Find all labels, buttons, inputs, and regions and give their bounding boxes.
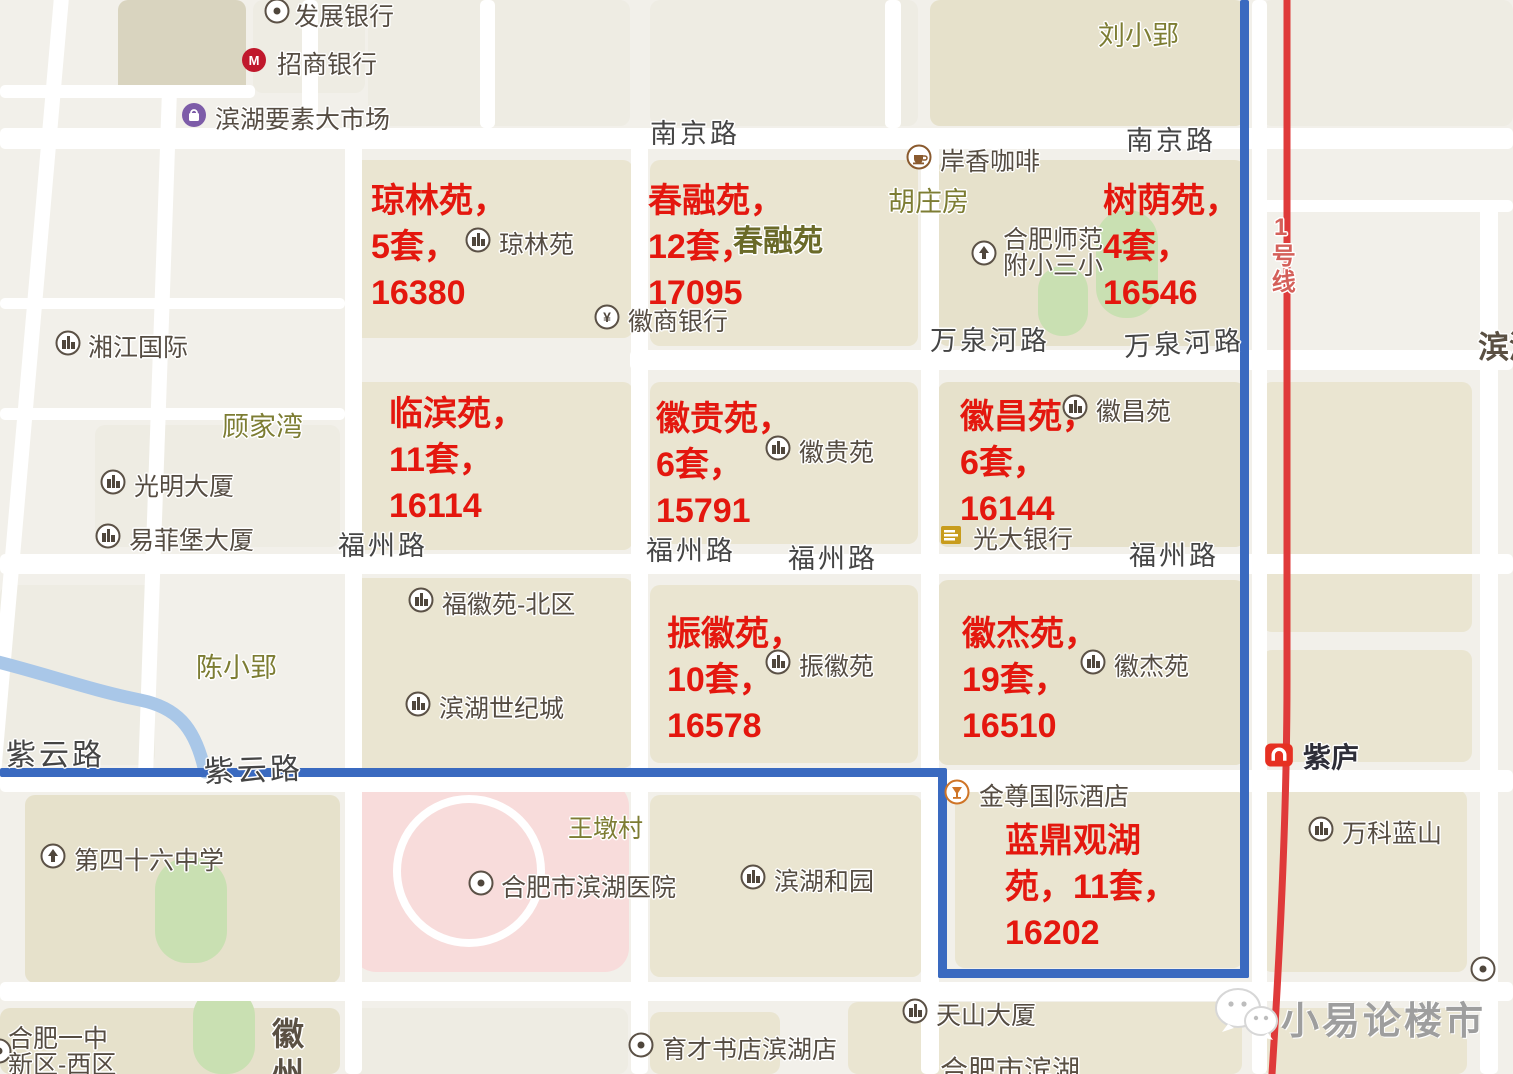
poi-label: 易菲堡大厦 <box>129 528 254 554</box>
coffee-icon <box>906 144 932 170</box>
listing-annotation-line: 苑，11套， <box>1005 864 1177 910</box>
listing-annotation-line: 16510 <box>962 703 1098 749</box>
poi-label-line: 发展银行 <box>294 4 394 30</box>
poi-label: 合肥市滨湖医院 <box>501 875 676 901</box>
listing-annotation-line: 16380 <box>371 270 507 316</box>
poi-label: 福徽苑-北区 <box>442 592 575 618</box>
map-block <box>1262 790 1467 972</box>
road <box>630 350 1513 370</box>
listing-annotation-line: 徽贵苑， <box>656 396 792 442</box>
map-block <box>930 0 1245 126</box>
road-label: 紫云路 <box>6 740 105 772</box>
listing-annotation-line: 10套， <box>667 657 803 703</box>
road <box>0 298 345 309</box>
poi-label-line: 滨湖和园 <box>774 869 874 895</box>
partial-label: 合肥市滨湖 <box>940 1056 1080 1074</box>
listing-annotation-line: 11套， <box>389 437 525 483</box>
poi-label: 滨湖和园 <box>774 869 874 895</box>
poi-label: 振徽苑 <box>799 654 874 680</box>
poi-label-line: 附小三小 <box>1003 253 1103 279</box>
poi-label: 天山大厦 <box>936 1003 1036 1029</box>
listing-annotation-line: 16114 <box>389 483 525 529</box>
building-icon <box>405 691 431 717</box>
building-icon <box>1308 816 1334 842</box>
boundary-line <box>1240 0 1249 978</box>
poi-label-line: 合肥一中 <box>8 1026 116 1052</box>
road-label: 福州路 <box>1129 542 1219 570</box>
listing-annotation: 徽昌苑，6套，16144 <box>960 394 1096 532</box>
bag-icon <box>181 102 207 128</box>
poi-label-line: 育才书店滨湖店 <box>662 1037 837 1063</box>
poi-label-line: 福徽苑-北区 <box>442 592 575 618</box>
poi-label: 徽杰苑 <box>1114 654 1189 680</box>
school-icon <box>40 843 66 869</box>
poi-label-line: 第四十六中学 <box>74 848 224 874</box>
map-block <box>1262 0 1513 126</box>
listing-annotation-line: 16546 <box>1103 270 1239 316</box>
road <box>0 554 1513 574</box>
metro-station-icon <box>1264 740 1294 770</box>
poi-label: 滨湖要素大市场 <box>215 107 390 133</box>
map-block <box>368 0 630 126</box>
road-label: 南京路 <box>650 120 740 148</box>
poi-label: 万科蓝山 <box>1342 821 1442 847</box>
poi-label: 岸香咖啡 <box>940 149 1040 175</box>
building-icon <box>740 864 766 890</box>
poi-label-line: 光明大厦 <box>134 474 234 500</box>
partial-label: 徽 <box>272 1018 304 1052</box>
poi-label: 光明大厦 <box>134 474 234 500</box>
road-label: 紫云路 <box>203 754 303 789</box>
poi-label-line: 金尊国际酒店 <box>979 784 1129 810</box>
listing-annotation-line: 春融苑， <box>648 178 784 224</box>
listing-annotation-line: 振徽苑， <box>667 611 803 657</box>
area-label: 陈小郢 <box>196 654 277 682</box>
partial-label: 州 <box>272 1058 304 1074</box>
poi-label-line: 湘江国际 <box>88 335 188 361</box>
listing-annotation-line: 12套， <box>648 224 784 270</box>
road <box>1252 0 1267 1074</box>
map-block <box>1262 382 1472 632</box>
poi-label-line: 合肥师范 <box>1003 227 1103 253</box>
road-label: 南京路 <box>1126 127 1216 155</box>
listing-annotation: 振徽苑，10套，16578 <box>667 611 803 749</box>
dot-icon <box>628 1032 654 1058</box>
poi-label-line: 天山大厦 <box>936 1003 1036 1029</box>
poi-label-line: 徽贵苑 <box>799 440 874 466</box>
road-label: 福州路 <box>646 537 736 565</box>
listing-annotation-line: 4套， <box>1103 224 1239 270</box>
poi-label-line: 滨湖世纪城 <box>439 696 564 722</box>
boundary-line <box>938 969 1249 978</box>
road <box>480 0 495 128</box>
poi-label: 育才书店滨湖店 <box>662 1037 837 1063</box>
road <box>885 0 901 128</box>
poi-label: 徽贵苑 <box>799 440 874 466</box>
partial-label: 滨湖 <box>1478 332 1513 365</box>
listing-annotation-line: 徽杰苑， <box>962 611 1098 657</box>
listing-annotation-line: 16202 <box>1005 910 1177 956</box>
listing-annotation-line: 6套， <box>960 440 1096 486</box>
listing-annotation-line: 19套， <box>962 657 1098 703</box>
poi-label: 徽昌苑 <box>1096 399 1171 425</box>
metro-line-label: 1号线 <box>1268 214 1293 295</box>
poi-label: 湘江国际 <box>88 335 188 361</box>
svg-text:¥: ¥ <box>603 309 611 325</box>
listing-annotation-line: 16578 <box>667 703 803 749</box>
dot-icon <box>468 870 494 896</box>
cmb-icon: M <box>241 47 267 73</box>
road-label: 福州路 <box>788 545 878 573</box>
listing-annotation: 蓝鼎观湖苑，11套，16202 <box>1005 818 1177 956</box>
dot-icon <box>1470 956 1496 982</box>
listing-annotation-line: 徽昌苑， <box>960 394 1096 440</box>
dot-icon <box>264 0 290 24</box>
listing-annotation-line: 16144 <box>960 486 1096 532</box>
listing-annotation: 徽贵苑，6套，15791 <box>656 396 792 534</box>
area-label: 王墩村 <box>568 816 643 842</box>
poi-label: 招商银行 <box>277 52 377 78</box>
boundary-line <box>0 768 947 777</box>
yuan-icon: ¥ <box>594 304 620 330</box>
road <box>0 85 255 98</box>
map-block <box>352 1008 628 1074</box>
poi-label-line: 振徽苑 <box>799 654 874 680</box>
listing-annotation-line: 5套， <box>371 224 507 270</box>
school-icon <box>971 240 997 266</box>
poi-label-line: 万科蓝山 <box>1342 821 1442 847</box>
area-label: 刘小郢 <box>1098 22 1179 50</box>
wechat-icon <box>1212 984 1282 1046</box>
listing-annotation-line: 17095 <box>648 270 784 316</box>
building-icon <box>902 998 928 1024</box>
listing-annotation: 树荫苑，4套，16546 <box>1103 178 1239 316</box>
map-block <box>118 0 246 96</box>
poi-label: 滨湖世纪城 <box>439 696 564 722</box>
building-icon <box>408 587 434 613</box>
metro-station-name: 紫庐 <box>1303 743 1359 772</box>
poi-label: 第四十六中学 <box>74 848 224 874</box>
poi-label-line: 合肥市滨湖医院 <box>501 875 676 901</box>
poi-label-line: 滨湖要素大市场 <box>215 107 390 133</box>
road <box>345 128 362 1074</box>
listing-annotation: 春融苑，12套，17095 <box>648 178 784 316</box>
poi-label-line: 招商银行 <box>277 52 377 78</box>
area-label: 顾家湾 <box>222 413 303 441</box>
road-label: 万泉河路 <box>1123 327 1244 362</box>
poi-label: 合肥一中新区-西区 <box>8 1026 116 1074</box>
poi-label-line: 徽昌苑 <box>1096 399 1171 425</box>
road <box>921 140 939 1074</box>
area-label: 胡庄房 <box>888 188 969 216</box>
listing-annotation-line: 临滨苑， <box>389 391 525 437</box>
poi-label: 合肥师范附小三小 <box>1003 227 1103 280</box>
listing-annotation: 徽杰苑，19套，16510 <box>962 611 1098 749</box>
poi-label-line: 岸香咖啡 <box>940 149 1040 175</box>
building-icon <box>55 330 81 356</box>
road-label: 福州路 <box>338 532 428 560</box>
listing-annotation: 临滨苑，11套，16114 <box>389 391 525 529</box>
road-label: 万泉河路 <box>930 327 1050 355</box>
map-screenshot: 发展银行M招商银行滨湖要素大市场湘江国际光明大厦易菲堡大厦琼林苑¥徽商银行岸香咖… <box>0 0 1513 1074</box>
map-block <box>650 0 918 126</box>
poi-label: 发展银行 <box>294 4 394 30</box>
map-block <box>0 585 155 765</box>
road <box>631 128 648 1074</box>
building-icon <box>100 469 126 495</box>
listing-annotation-line: 琼林苑， <box>371 178 507 224</box>
building-icon <box>95 523 121 549</box>
poi-label: 琼林苑 <box>499 232 574 258</box>
poi-label-line: 琼林苑 <box>499 232 574 258</box>
svg-text:M: M <box>249 53 260 68</box>
watermark-text: 小易论楼市 <box>1281 990 1486 1045</box>
poi-label-line: 新区-西区 <box>8 1052 116 1074</box>
listing-annotation-line: 15791 <box>656 488 792 534</box>
poi-label-line: 徽杰苑 <box>1114 654 1189 680</box>
listing-annotation: 琼林苑，5套，16380 <box>371 178 507 316</box>
hotel-icon <box>944 779 970 805</box>
listing-annotation-line: 6套， <box>656 442 792 488</box>
poi-label-line: 易菲堡大厦 <box>129 528 254 554</box>
listing-annotation-line: 树荫苑， <box>1103 178 1239 224</box>
listing-annotation-line: 蓝鼎观湖 <box>1005 818 1177 864</box>
road <box>1262 200 1513 212</box>
poi-label: 金尊国际酒店 <box>979 784 1129 810</box>
